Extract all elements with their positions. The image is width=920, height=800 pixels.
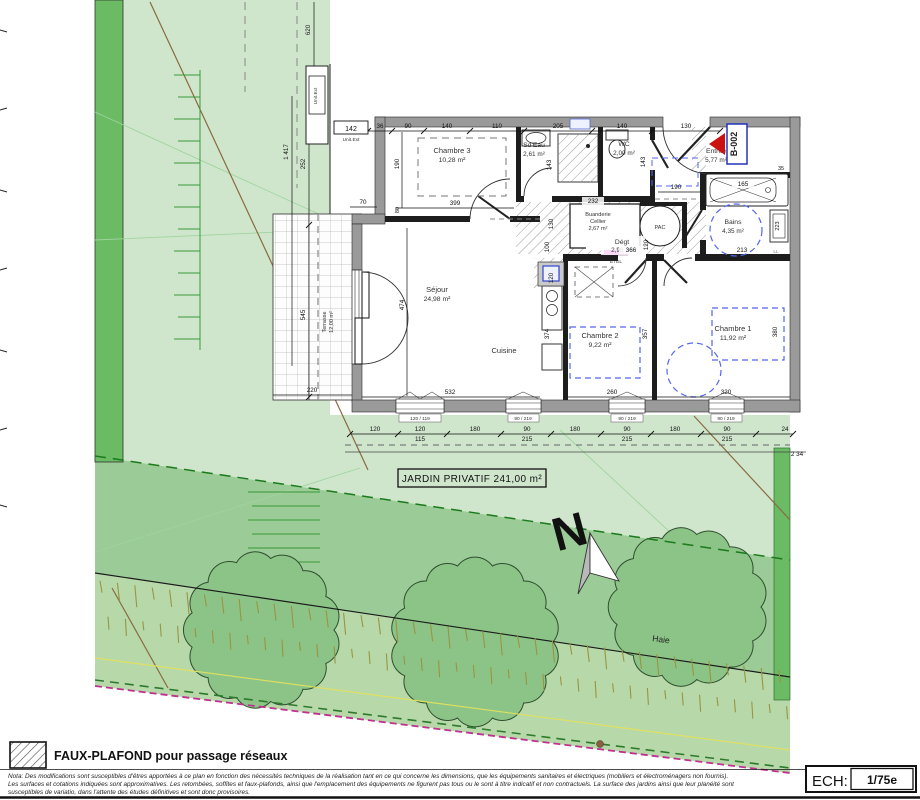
chambre1-name: Chambre 1 [714, 324, 751, 333]
dim: 215 [622, 436, 633, 443]
pac-label: PAC [655, 225, 666, 231]
sdeau-name: Sd'Eau [523, 142, 545, 149]
wall-left-upper [375, 117, 385, 222]
wall-bottom [444, 400, 506, 412]
unit-ext-label: Unit.Ext [313, 87, 319, 104]
terrasse-name: Terrasse [322, 311, 328, 332]
washer-label: LL [773, 249, 779, 255]
wall-c2-c1 [652, 261, 657, 400]
dim: 90 [623, 426, 631, 433]
etel-label: ETEL [610, 259, 622, 265]
buanderie-name: Buanderie [585, 212, 611, 218]
dim: 205 [553, 123, 564, 130]
jardin-privatif-text: JARDIN PRIVATIF 241,00 m² [402, 474, 542, 485]
wall-corridor-bottom [646, 254, 664, 261]
dim: 115 [415, 436, 426, 443]
terrasse-area: 12,00 m² [329, 311, 335, 333]
dim: 180 [470, 426, 481, 433]
dim: 24 [781, 426, 789, 433]
dim-right-edge: 2 34 [791, 451, 804, 458]
scale-box: ECH: 1/75e [806, 766, 916, 792]
dim: 232 [588, 198, 599, 205]
bains-area: 4,35 m² [722, 228, 744, 235]
cellier-name: Cellier [590, 219, 606, 225]
chambre1-area: 11,92 m² [720, 335, 747, 342]
boundary-marker [597, 741, 604, 748]
wall-top [710, 117, 800, 127]
dim-165: 165 [732, 180, 754, 188]
dim: 36 [376, 123, 384, 130]
wall-bains-left [700, 240, 706, 254]
nota-line-1: Nota: Des modifications sont susceptible… [8, 773, 728, 780]
vmc-box [570, 119, 590, 129]
chambre3-area: 10,28 m² [439, 157, 467, 164]
dim: 380 [772, 326, 779, 337]
window-label: 90 / 219 [717, 416, 735, 422]
dim: 260 [607, 389, 618, 396]
wall-sde-wc [598, 127, 603, 202]
wc-area: 2,00 m² [613, 150, 635, 157]
chambre3-name: Chambre 3 [433, 146, 470, 155]
dim: 35 [778, 166, 784, 172]
kitchen-counter [542, 286, 562, 370]
floorplan-sheet: JARDIN PRIVATIF 241,00 m² Haie N 120 120… [0, 0, 920, 800]
dim: 90 [523, 426, 531, 433]
dim: 374 [544, 328, 551, 339]
entree-area: 5,77 m² [705, 157, 727, 164]
dim: 215 [722, 436, 733, 443]
dim: 215 [522, 436, 533, 443]
buanderie-area: 2,67 m² [589, 226, 608, 232]
wall-bottom [541, 400, 609, 412]
dim: 142 [345, 126, 357, 133]
dim: 190 [671, 184, 682, 191]
dim: 120 [415, 426, 426, 433]
wall-bottom [744, 400, 800, 412]
planting-band-right [774, 448, 790, 700]
tree [392, 557, 558, 727]
window-label: 90 / 219 [514, 416, 532, 422]
faux-plafond-swatch [10, 742, 46, 768]
dim: 100 [544, 241, 551, 252]
dim: 223 [775, 221, 781, 230]
dim: 366 [626, 247, 637, 254]
bains-name: Bains [724, 219, 742, 226]
dim: 1 417 [283, 144, 290, 160]
wall-sde-bottom [516, 196, 524, 202]
faux-plafond-legend: FAUX-PLAFOND pour passage réseaux [54, 749, 287, 763]
dim: 120 [548, 272, 555, 283]
bathtub [706, 174, 788, 206]
dim: 180 [670, 426, 681, 433]
nota-line-3: susceptibles de variatio, dans l'attente… [8, 789, 250, 796]
dim: 190 [394, 158, 401, 169]
dim: 180 [570, 426, 581, 433]
wc-name: WC [618, 141, 629, 148]
wall-step [352, 214, 385, 224]
chambre2-area: 9,22 m² [588, 342, 612, 349]
dim: 90 [404, 123, 412, 130]
dim-terrace-width: 220 [307, 387, 318, 394]
sejour-area: 24,98 m² [424, 296, 452, 303]
planting-band-left [95, 0, 123, 462]
dim: 130 [681, 123, 692, 130]
dim: 399 [450, 200, 461, 207]
dim: 532 [445, 389, 456, 396]
nota-line-2: Les surfaces et cotations indiquées sont… [8, 781, 734, 788]
window-label: 120 / 119 [410, 416, 430, 422]
wall-left [352, 224, 362, 270]
dim: 320 [721, 389, 732, 396]
exterior-unit: Unit.Ext [306, 66, 328, 144]
sheet-edge-marks [0, 30, 7, 507]
wall-c3-sde [516, 127, 521, 202]
dim: 120 [370, 426, 381, 433]
dim: 90 [723, 426, 731, 433]
wall-right [790, 117, 800, 412]
dim: 165 [738, 181, 749, 188]
wall-bottom [352, 400, 396, 412]
dim: 357 [642, 328, 649, 339]
dim: 120 [643, 239, 650, 250]
wall-pac-niche [682, 202, 687, 248]
dim: 110 [492, 123, 503, 130]
dim-366: 366 [619, 246, 643, 254]
dim: 140 [442, 123, 453, 130]
chambre2-name: Chambre 2 [581, 331, 618, 340]
wall-bottom [645, 400, 709, 412]
wall-left [352, 364, 362, 402]
dim: 545 [300, 309, 307, 320]
dim: 80 [395, 207, 401, 213]
shower [558, 134, 598, 182]
wall-c3-sejour [385, 216, 470, 222]
unit-ref-text: B-002 [729, 132, 739, 157]
cuisine-name: Cuisine [491, 346, 516, 355]
sejour-name: Séjour [426, 285, 448, 294]
dim: 213 [737, 247, 748, 254]
dim-232: 232 [582, 197, 604, 205]
wall-bains-left [700, 172, 706, 210]
dim: 620 [305, 24, 312, 35]
scale-value: 1/75e [867, 773, 897, 787]
wall-pac-niche [640, 202, 687, 206]
window-label: 90 / 219 [618, 416, 636, 422]
dim: 140 [617, 123, 628, 130]
dim: 252 [300, 158, 307, 169]
dim: 143 [546, 159, 553, 170]
dim: 130 [548, 218, 555, 229]
scale-label: ECH: [812, 773, 848, 790]
sdeau-area: 2,61 m² [523, 151, 545, 158]
dim: 70 [359, 199, 367, 206]
terrace: Terrasse 12,00 m² 220 [273, 214, 362, 400]
dim: 474 [399, 299, 406, 310]
unit-ext-label: Unit.Ext [343, 137, 360, 143]
floorplan-drawing: JARDIN PRIVATIF 241,00 m² Haie N 120 120… [0, 0, 920, 800]
dim: 143 [640, 156, 647, 167]
degt-name: Dégt [615, 239, 629, 246]
